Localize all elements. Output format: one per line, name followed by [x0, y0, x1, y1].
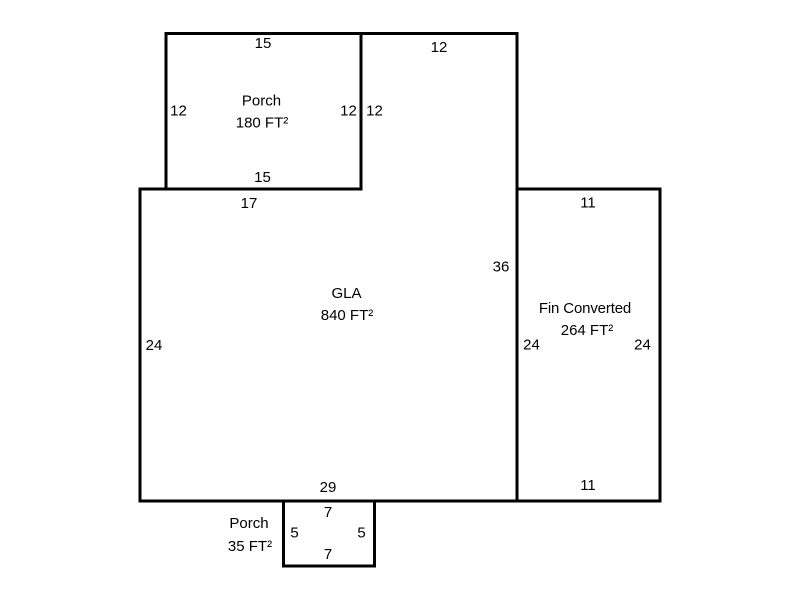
svg-text:GLA: GLA [331, 285, 361, 302]
svg-text:Porch: Porch [229, 515, 268, 532]
svg-text:12: 12 [340, 103, 357, 120]
svg-text:11: 11 [580, 477, 596, 494]
svg-text:12: 12 [170, 103, 187, 120]
svg-text:11: 11 [580, 195, 596, 212]
svg-text:29: 29 [320, 479, 337, 496]
svg-text:Porch: Porch [242, 93, 281, 110]
svg-text:15: 15 [255, 35, 272, 52]
svg-text:15: 15 [254, 169, 271, 186]
svg-text:12: 12 [431, 39, 448, 56]
svg-text:35 FT²: 35 FT² [228, 538, 272, 555]
svg-text:17: 17 [241, 195, 258, 212]
svg-text:840 FT²: 840 FT² [321, 307, 374, 324]
svg-text:7: 7 [324, 504, 332, 521]
svg-text:7: 7 [324, 546, 332, 563]
svg-text:24: 24 [523, 337, 540, 354]
svg-text:5: 5 [357, 525, 365, 542]
svg-text:Fin Converted: Fin Converted [539, 300, 631, 317]
svg-text:24: 24 [146, 337, 163, 354]
svg-text:5: 5 [290, 525, 298, 542]
svg-text:12: 12 [366, 103, 383, 120]
svg-text:24: 24 [634, 337, 651, 354]
svg-text:180 FT²: 180 FT² [236, 115, 289, 132]
svg-text:264 FT²: 264 FT² [561, 322, 614, 339]
svg-text:36: 36 [493, 259, 510, 276]
